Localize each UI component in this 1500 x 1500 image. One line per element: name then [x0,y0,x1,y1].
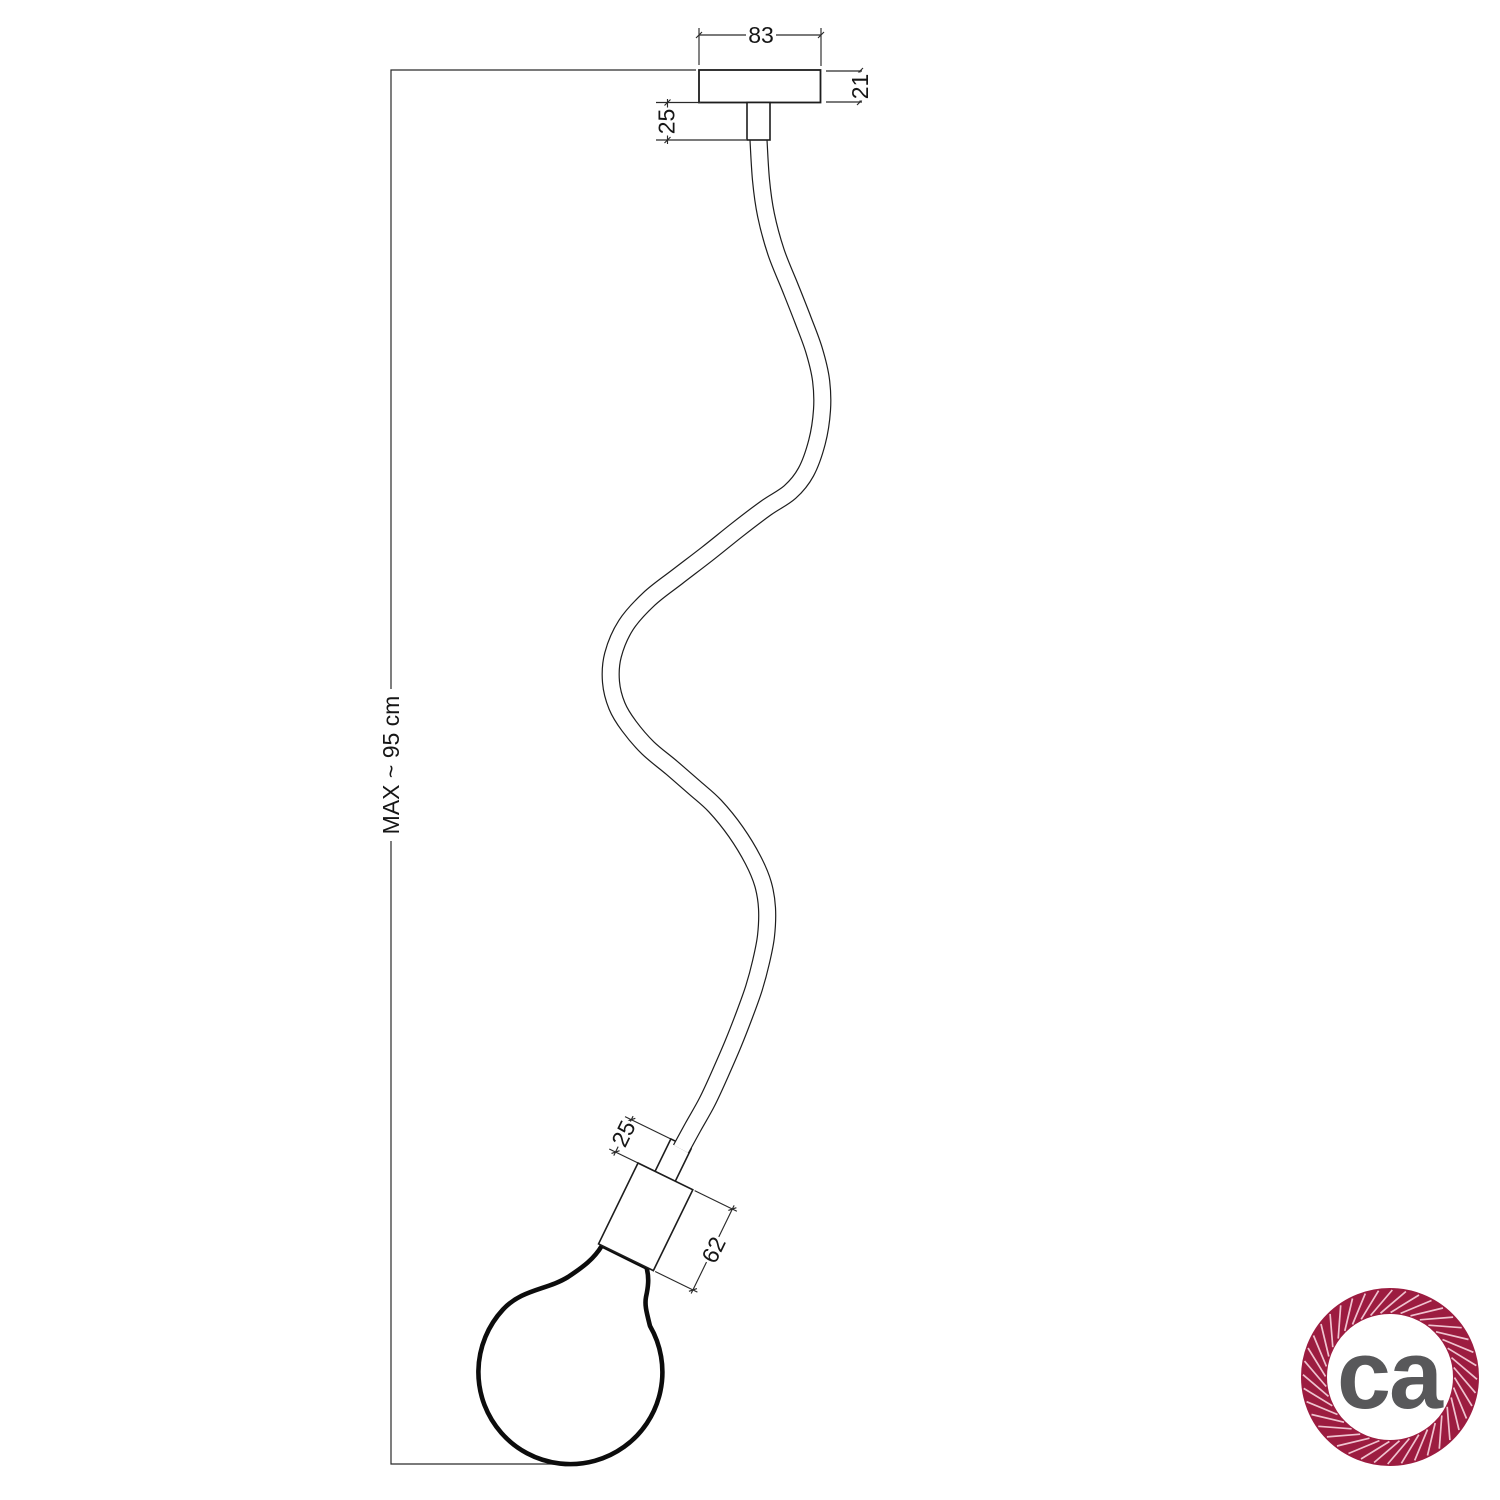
svg-text:ca: ca [1337,1320,1444,1429]
svg-text:83: 83 [748,22,774,48]
svg-text:MAX ~ 95 cm: MAX ~ 95 cm [378,696,404,835]
svg-text:25: 25 [654,109,680,135]
svg-text:21: 21 [847,74,873,100]
